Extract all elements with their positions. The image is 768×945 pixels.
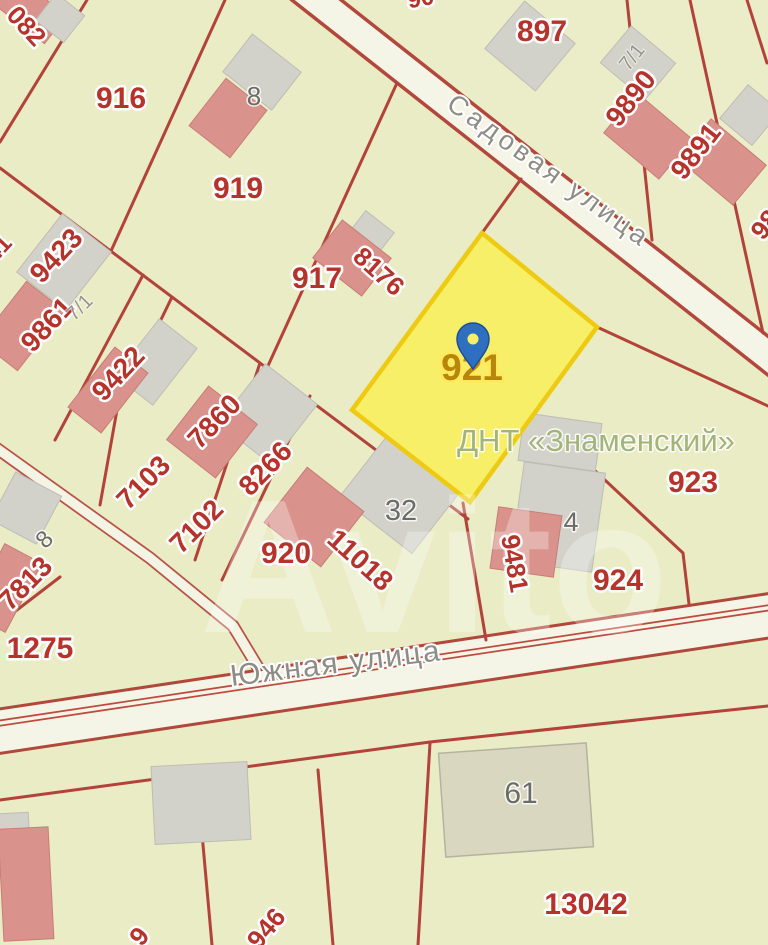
parcel-label-924: 924 <box>593 564 643 597</box>
parcel-label-923: 923 <box>668 466 718 499</box>
parcel-label-916: 916 <box>96 82 146 115</box>
pin-hole <box>468 334 479 345</box>
building-label-4: 4 <box>563 507 578 537</box>
parcel-label-919: 919 <box>213 172 263 205</box>
building <box>151 762 251 845</box>
area-label: ДНТ «Знаменский» <box>457 423 735 458</box>
building-label-32: 32 <box>385 495 417 527</box>
parcel-label-13042: 13042 <box>544 888 627 921</box>
parcel-label-920: 920 <box>261 537 311 570</box>
cadastral-map-canvas[interactable]: Avito Садовая улица Южная улица ДНТ «Зна… <box>0 0 768 945</box>
parcel-label-897: 897 <box>517 15 567 48</box>
building-label-61: 61 <box>504 777 537 810</box>
building-label-8: 8 <box>247 81 261 111</box>
parcel-label-917: 917 <box>292 262 342 295</box>
parcel-label-1275: 1275 <box>7 632 74 665</box>
building <box>0 827 54 941</box>
